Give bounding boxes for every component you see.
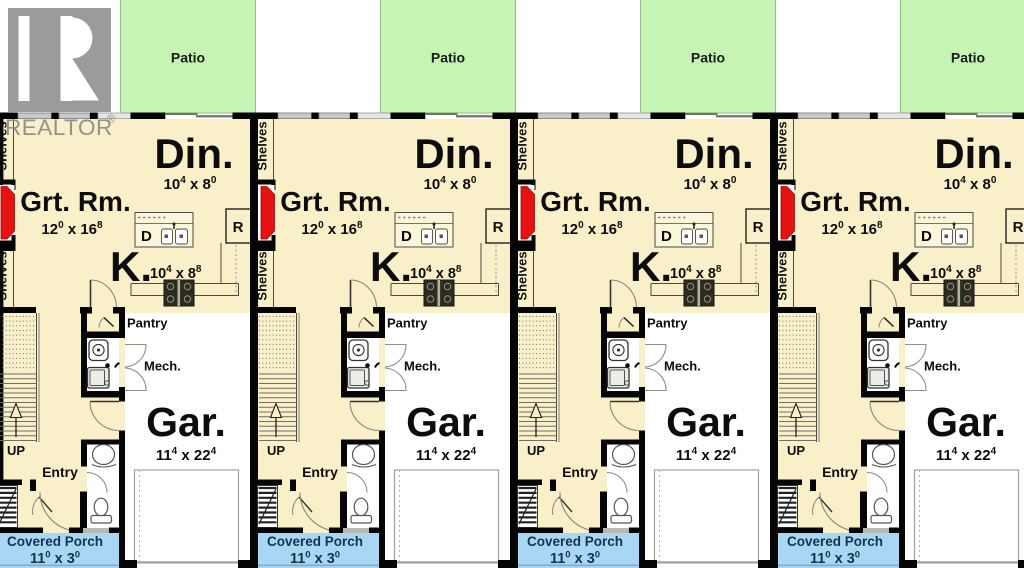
svg-text:D: D — [661, 228, 672, 245]
svg-text:Pantry: Pantry — [907, 316, 948, 331]
svg-text:114 x 224: 114 x 224 — [156, 446, 217, 464]
svg-text:R: R — [233, 219, 244, 236]
svg-text:Patio: Patio — [691, 50, 725, 66]
svg-text:Gar.: Gar. — [666, 399, 746, 445]
svg-text:D: D — [141, 228, 152, 245]
svg-text:Shelves: Shelves — [515, 121, 530, 170]
svg-text:Mech.: Mech. — [664, 359, 701, 374]
svg-text:104 x 88: 104 x 88 — [670, 264, 722, 282]
svg-text:120 x 168: 120 x 168 — [821, 220, 883, 238]
svg-text:Entry: Entry — [42, 464, 78, 480]
svg-text:Gar.: Gar. — [926, 399, 1006, 445]
svg-text:Grt. Rm.: Grt. Rm. — [20, 186, 130, 217]
svg-text:Entry: Entry — [822, 464, 858, 480]
svg-text:UP: UP — [267, 443, 285, 458]
svg-text:Pantry: Pantry — [647, 316, 688, 331]
svg-text:104 x 88: 104 x 88 — [150, 264, 202, 282]
svg-text:Patio: Patio — [431, 50, 465, 66]
svg-text:104 x 80: 104 x 80 — [424, 175, 477, 193]
svg-text:Gar.: Gar. — [406, 399, 486, 445]
svg-text:120 x 168: 120 x 168 — [301, 220, 363, 238]
svg-text:104 x 80: 104 x 80 — [944, 175, 997, 193]
svg-text:Shelves: Shelves — [0, 251, 10, 300]
svg-text:104 x 88: 104 x 88 — [410, 264, 462, 282]
svg-text:Entry: Entry — [562, 464, 598, 480]
svg-text:Pantry: Pantry — [127, 316, 168, 331]
svg-text:Din.: Din. — [674, 130, 753, 177]
svg-text:K.: K. — [890, 243, 932, 290]
svg-text:Din.: Din. — [154, 130, 233, 177]
svg-text:110 x 30: 110 x 30 — [550, 550, 600, 568]
svg-text:R: R — [493, 219, 504, 236]
svg-text:104 x 80: 104 x 80 — [684, 175, 737, 193]
svg-text:REALTOR: REALTOR — [5, 115, 113, 140]
svg-text:Covered Porch: Covered Porch — [527, 534, 623, 549]
svg-text:Pantry: Pantry — [387, 316, 428, 331]
svg-text:Shelves: Shelves — [255, 251, 270, 300]
svg-text:114 x 224: 114 x 224 — [416, 446, 477, 464]
svg-text:110 x 30: 110 x 30 — [810, 550, 860, 568]
svg-text:UP: UP — [7, 443, 25, 458]
svg-text:110 x 30: 110 x 30 — [30, 550, 80, 568]
svg-text:Covered Porch: Covered Porch — [787, 534, 883, 549]
svg-text:Mech.: Mech. — [404, 359, 441, 374]
svg-text:Shelves: Shelves — [255, 121, 270, 170]
svg-text:Grt. Rm.: Grt. Rm. — [800, 186, 910, 217]
svg-text:UP: UP — [527, 443, 545, 458]
svg-text:120 x 168: 120 x 168 — [561, 220, 623, 238]
svg-text:Mech.: Mech. — [144, 359, 181, 374]
svg-text:114 x 224: 114 x 224 — [676, 446, 737, 464]
svg-text:Patio: Patio — [171, 50, 205, 66]
svg-text:®: ® — [107, 112, 116, 126]
svg-text:R: R — [753, 219, 764, 236]
svg-text:Shelves: Shelves — [515, 251, 530, 300]
svg-text:Shelves: Shelves — [775, 251, 790, 300]
svg-text:Covered Porch: Covered Porch — [267, 534, 363, 549]
svg-text:Mech.: Mech. — [924, 359, 961, 374]
svg-text:110 x 30: 110 x 30 — [290, 550, 340, 568]
svg-text:Din.: Din. — [414, 130, 493, 177]
svg-text:Grt. Rm.: Grt. Rm. — [280, 186, 390, 217]
svg-text:UP: UP — [787, 443, 805, 458]
svg-text:K.: K. — [370, 243, 412, 290]
svg-text:D: D — [921, 228, 932, 245]
svg-text:114 x 224: 114 x 224 — [936, 446, 997, 464]
svg-text:104 x 80: 104 x 80 — [164, 175, 217, 193]
svg-text:K.: K. — [630, 243, 672, 290]
svg-text:Shelves: Shelves — [775, 121, 790, 170]
svg-text:D: D — [401, 228, 412, 245]
svg-text:104 x 88: 104 x 88 — [930, 264, 982, 282]
svg-text:Patio: Patio — [951, 50, 985, 66]
svg-text:120 x 168: 120 x 168 — [41, 220, 103, 238]
svg-text:Entry: Entry — [302, 464, 338, 480]
svg-text:Grt. Rm.: Grt. Rm. — [540, 186, 650, 217]
svg-text:K.: K. — [110, 243, 152, 290]
svg-text:Din.: Din. — [934, 130, 1013, 177]
svg-text:R: R — [1013, 219, 1024, 236]
svg-text:Covered Porch: Covered Porch — [7, 534, 103, 549]
svg-text:Gar.: Gar. — [146, 399, 226, 445]
